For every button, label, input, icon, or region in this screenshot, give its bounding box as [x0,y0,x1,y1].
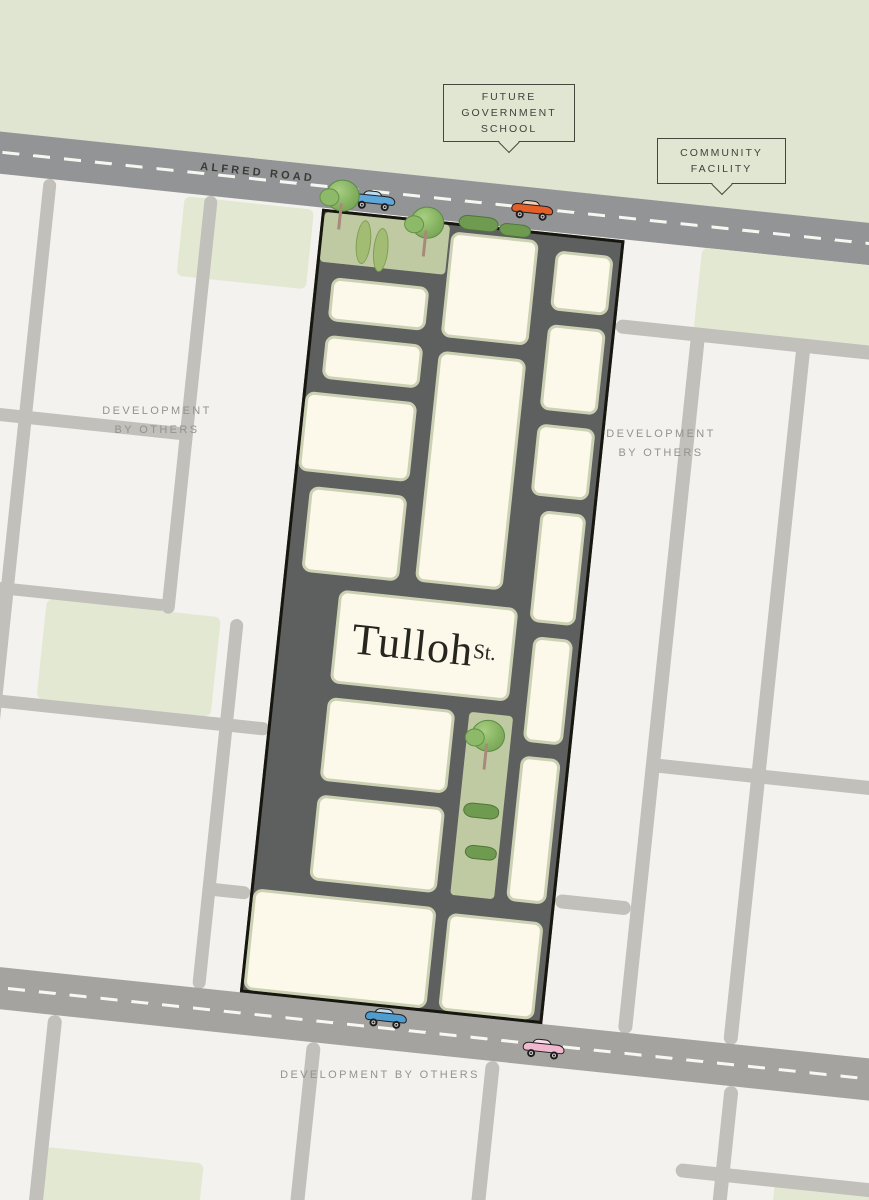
street [618,327,706,1035]
street [259,1042,321,1200]
street [723,338,811,1046]
estate-block [530,423,595,501]
estate-block [550,250,614,316]
orange-car-icon [511,198,555,219]
estate-block [319,697,455,794]
estate-title: Tulloh [350,613,476,676]
estate-block [243,888,437,1009]
street [554,894,631,916]
estate-block [415,351,527,591]
estate-block [539,324,606,416]
tree-icon [467,718,506,773]
street-tree-icon [322,178,361,233]
estate-block [440,231,539,346]
estate-block [301,486,407,582]
blue-car-icon [364,1007,408,1028]
masterplan-map: ALFRED ROAD [0,0,869,1200]
map-rotated-layer: ALFRED ROAD [0,0,869,1200]
estate-block [523,636,574,746]
street [677,1085,739,1200]
street [438,1060,500,1200]
green-block [36,599,220,717]
estate-block [438,913,544,1020]
estate-block [309,794,445,893]
street [0,178,57,965]
green-block [693,248,869,377]
green-block [32,1147,204,1200]
estate-block [298,391,418,482]
estate-block [328,277,430,331]
estate-block [321,335,423,389]
estate-title-suffix: St. [472,638,497,665]
estate-block [529,510,586,626]
street-tree-icon [407,205,446,260]
estate-title-block: TullohSt. [330,590,519,702]
estate-block [506,755,561,904]
pink-car-icon [522,1037,566,1058]
